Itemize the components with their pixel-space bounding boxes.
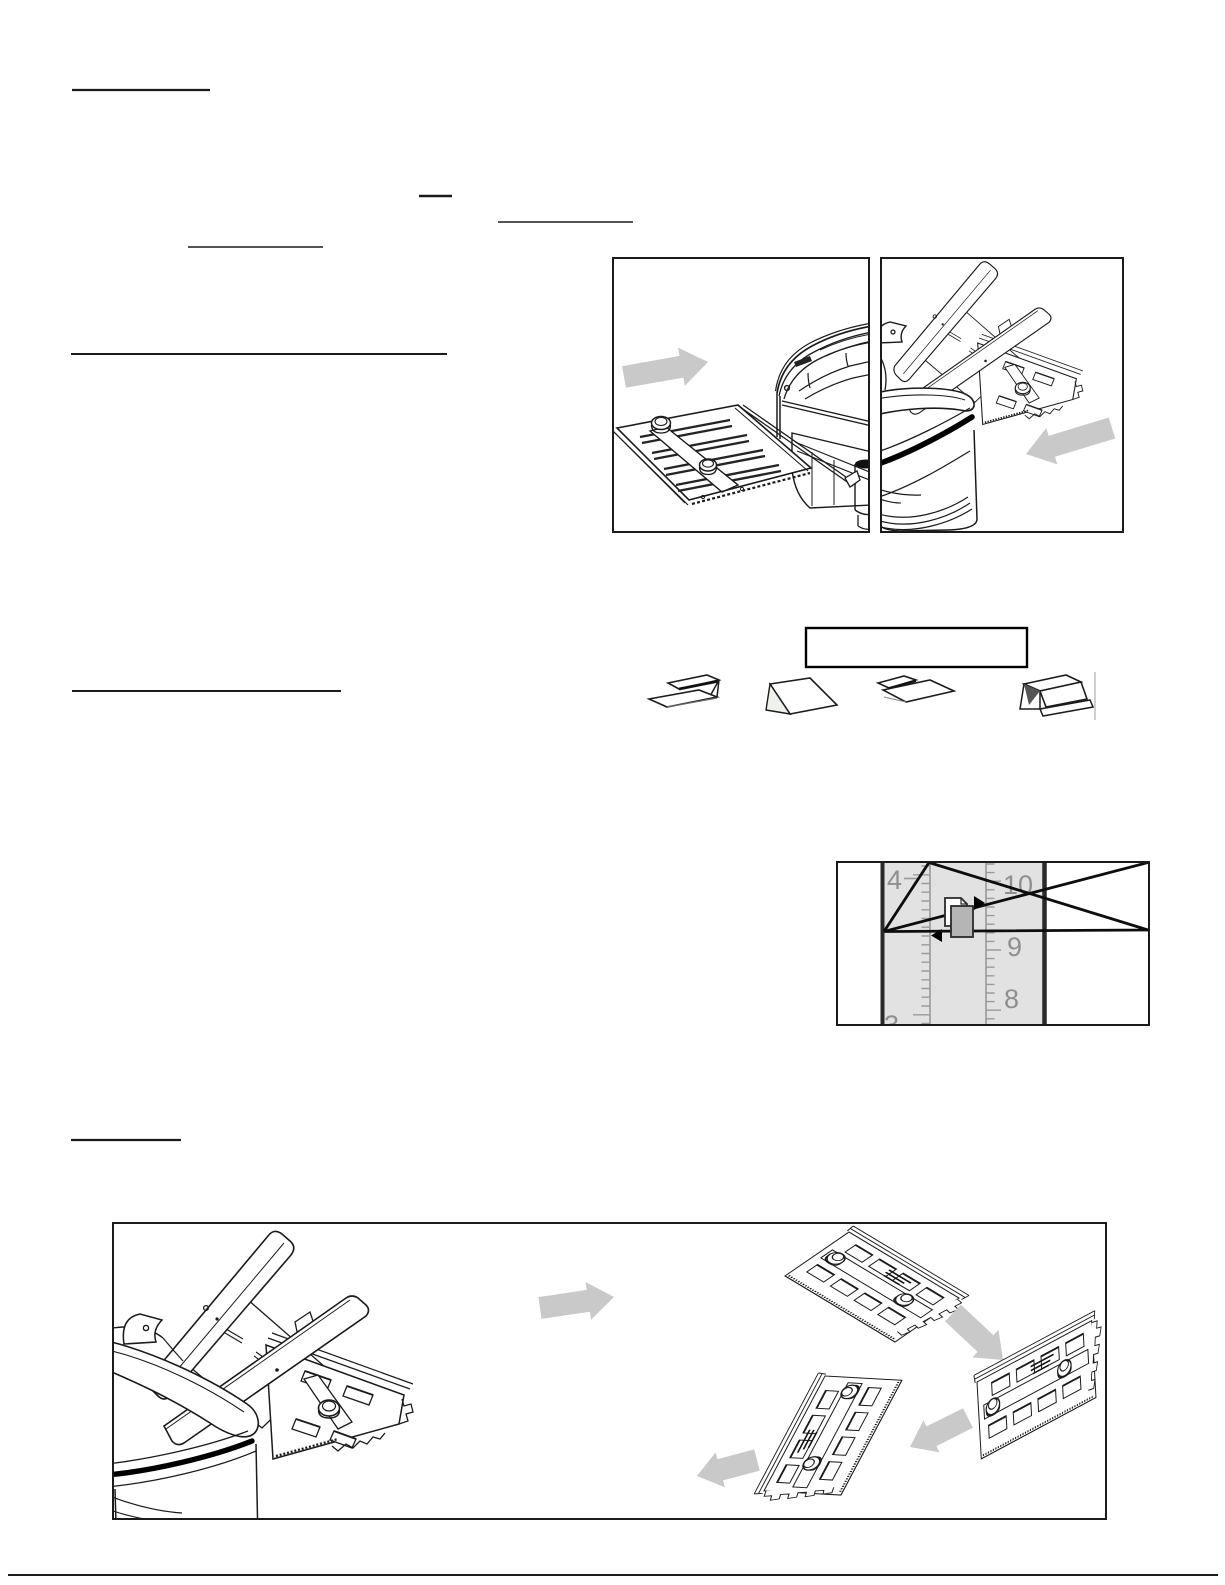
svg-text:4: 4 — [887, 865, 902, 895]
svg-text:8: 8 — [1004, 984, 1019, 1014]
svg-text:9: 9 — [1007, 932, 1022, 962]
